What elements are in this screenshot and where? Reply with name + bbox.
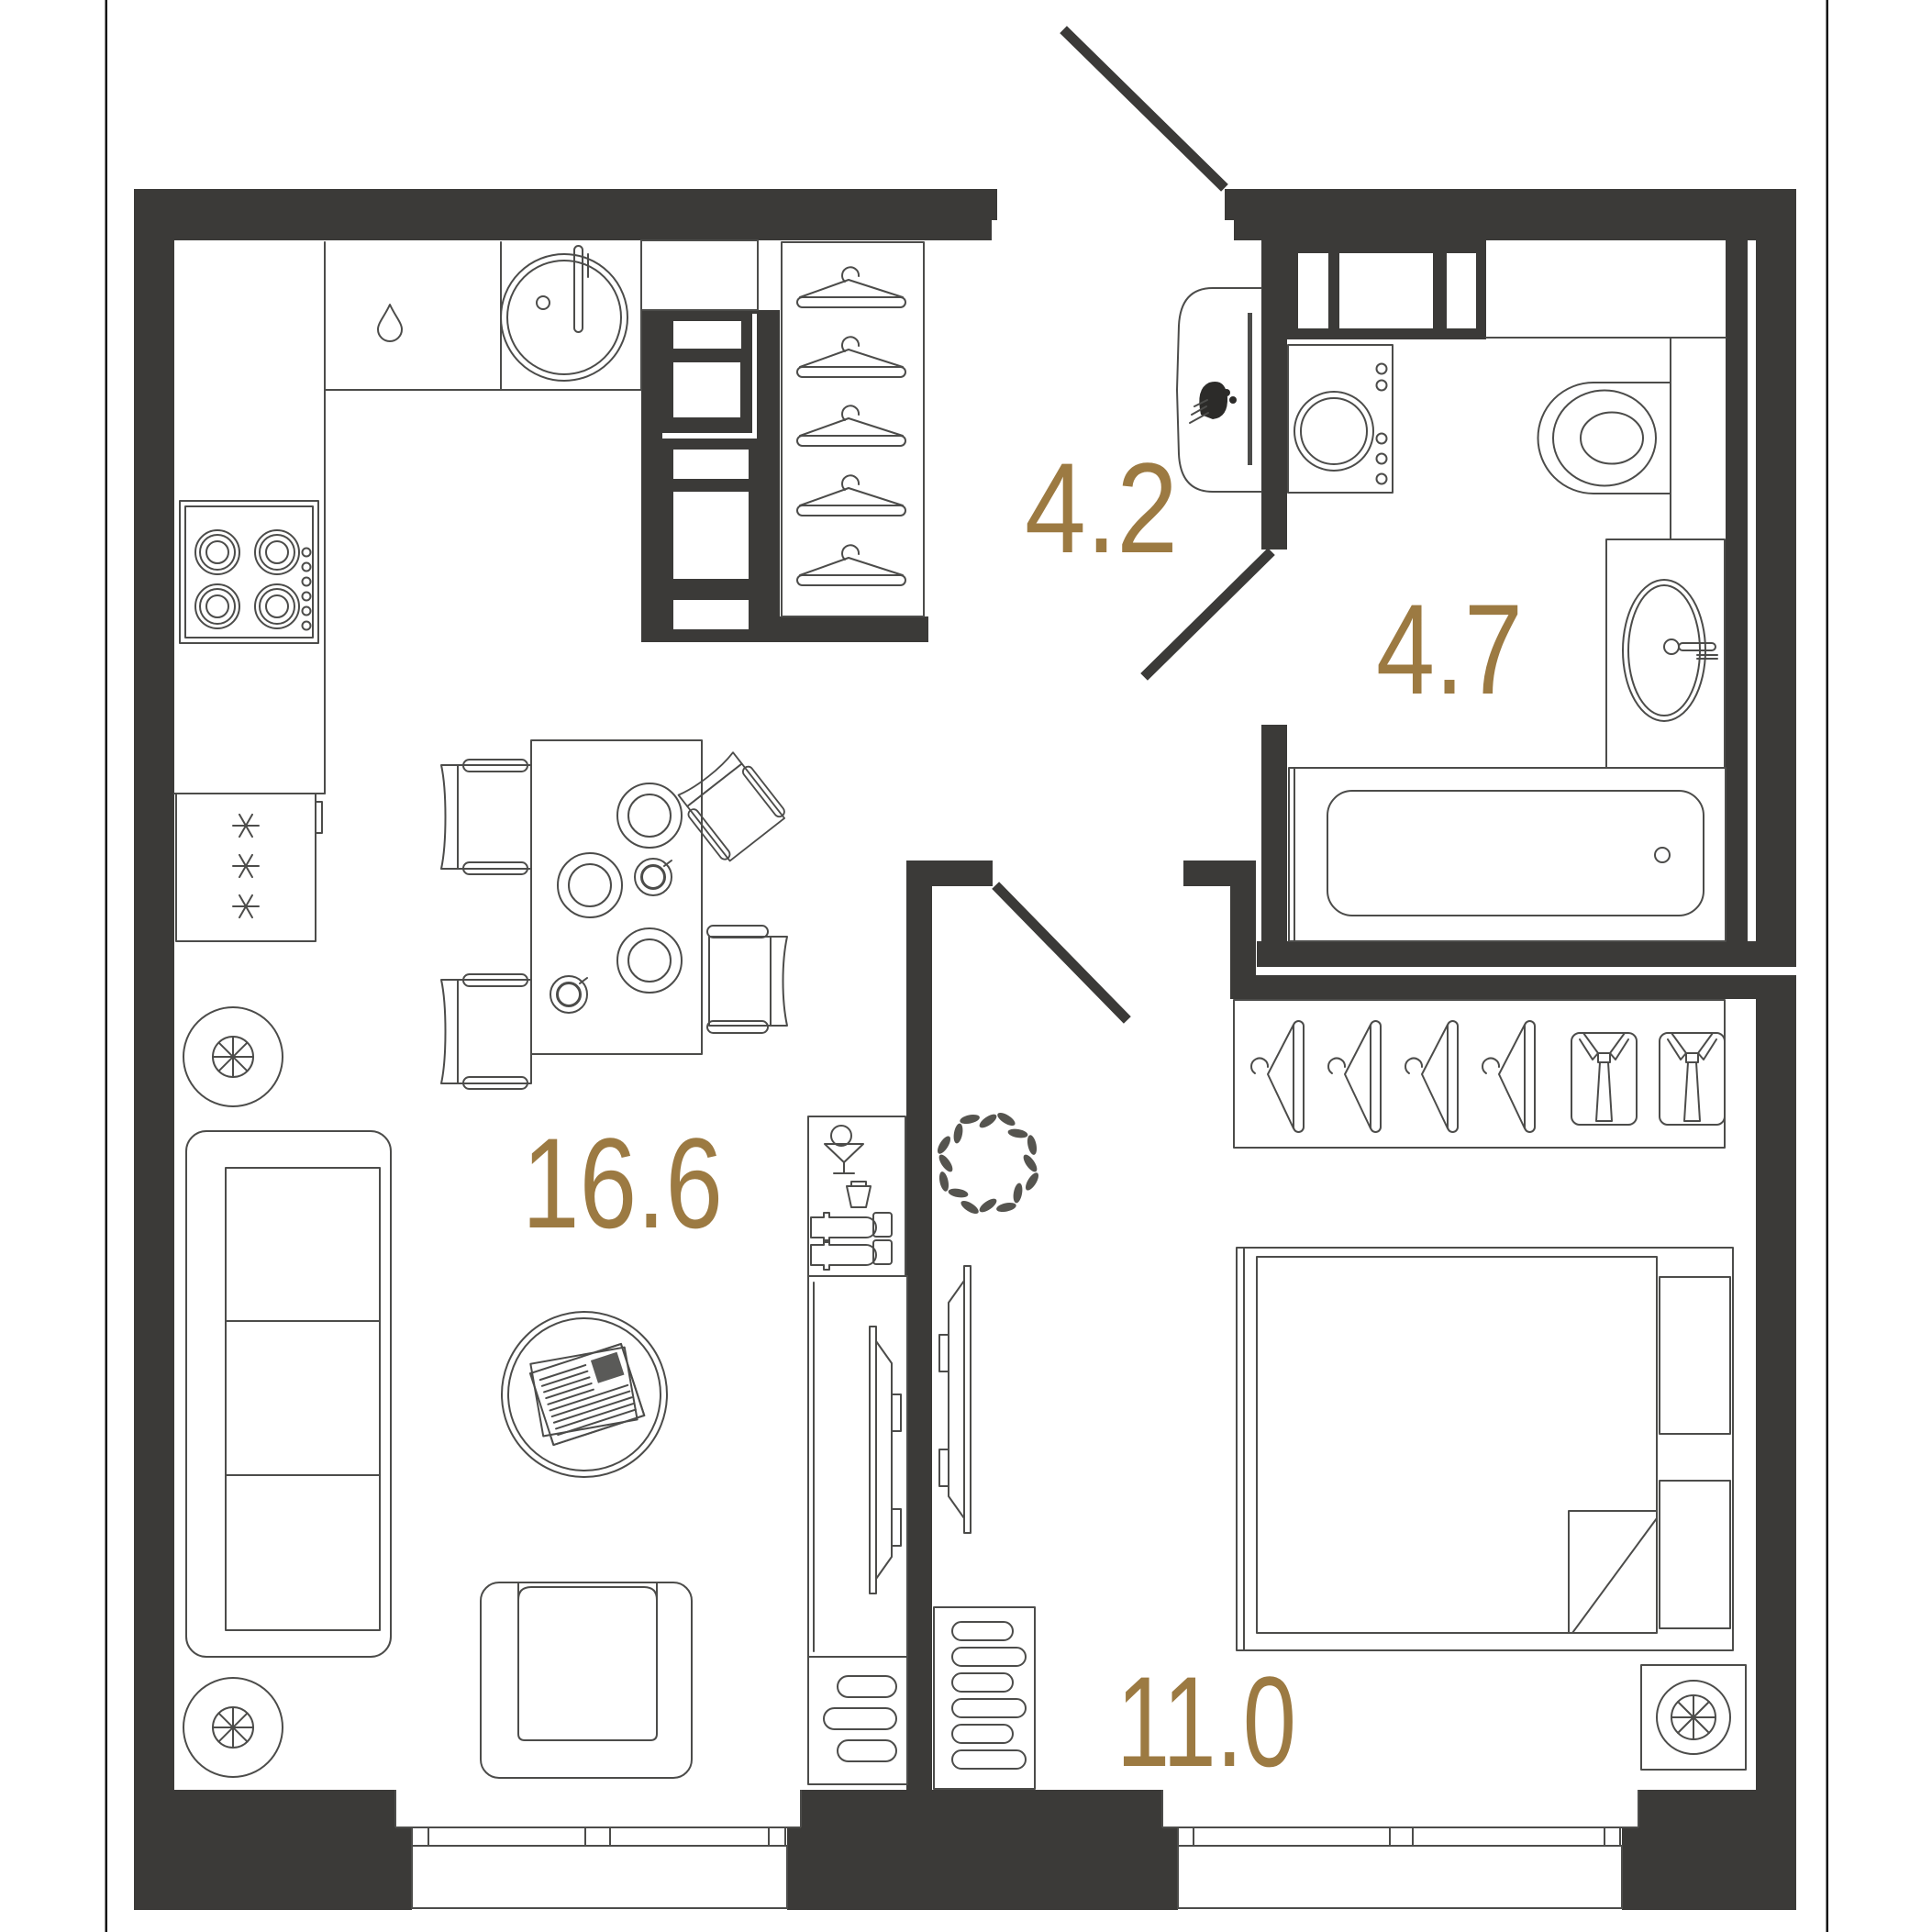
svg-text:11.0: 11.0 [1116,1649,1296,1793]
svg-text:4.7: 4.7 [1376,577,1523,721]
svg-text:16.6: 16.6 [522,1111,723,1255]
svg-text:4.2: 4.2 [1025,436,1178,580]
